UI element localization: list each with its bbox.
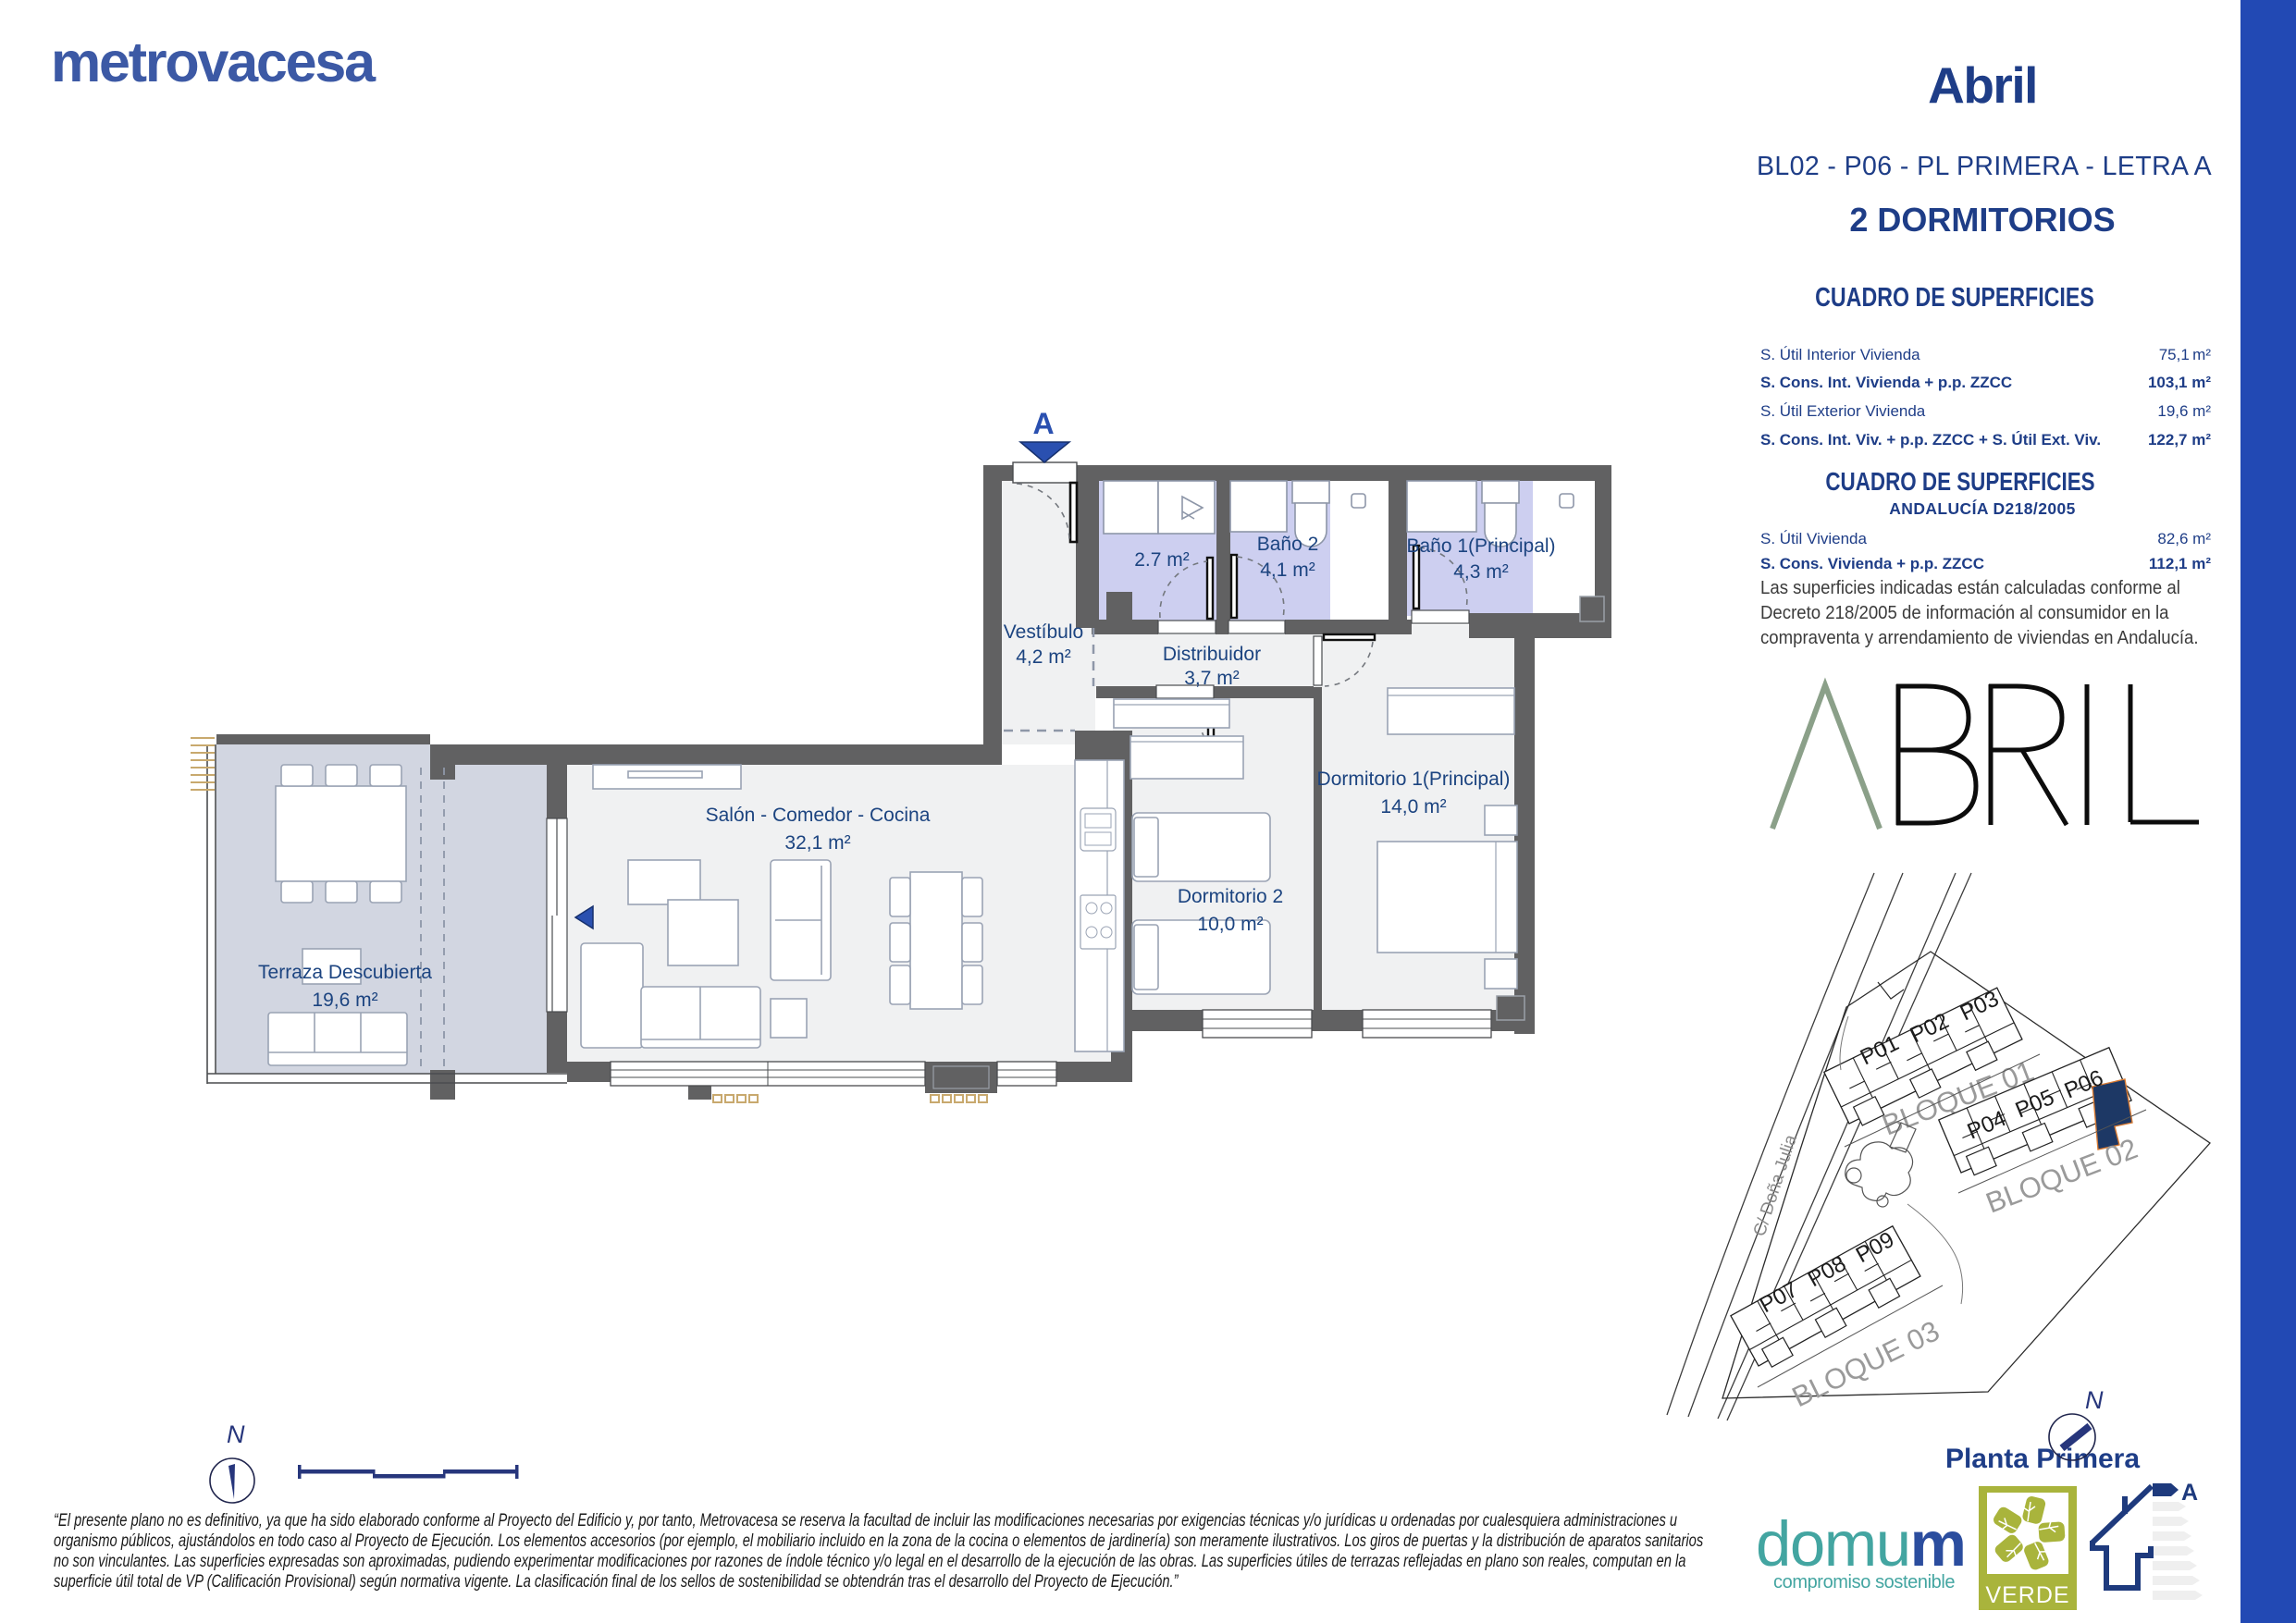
svg-text:10,0 m²: 10,0 m² [1197,914,1263,935]
svg-text:2.7 m²: 2.7 m² [1134,549,1190,571]
svg-text:3,7 m²: 3,7 m² [1184,668,1240,689]
svg-text:Vestíbulo: Vestíbulo [1004,621,1083,643]
svg-text:32,1 m²: 32,1 m² [784,832,850,854]
svg-text:Terraza Descubierta: Terraza Descubierta [258,962,432,983]
svg-text:4,1 m²: 4,1 m² [1260,559,1315,581]
svg-text:Dormitorio 2: Dormitorio 2 [1178,886,1283,907]
svg-text:N: N [227,1420,245,1448]
svg-text:Dormitorio 1(Principal): Dormitorio 1(Principal) [1317,768,1511,790]
svg-text:A: A [1032,407,1054,440]
svg-text:4,3 m²: 4,3 m² [1453,561,1509,583]
svg-text:Baño 2: Baño 2 [1257,534,1319,555]
svg-text:Baño 1(Principal): Baño 1(Principal) [1406,535,1555,557]
svg-text:Distribuidor: Distribuidor [1163,644,1261,665]
svg-text:A: A [2181,1480,2198,1506]
svg-text:VERDE: VERDE [1985,1582,2069,1608]
svg-text:4,2 m²: 4,2 m² [1016,646,1071,668]
svg-text:C/ Doña Julia: C/ Doña Julia [1750,1132,1801,1238]
svg-text:N: N [2085,1386,2104,1414]
svg-text:14,0 m²: 14,0 m² [1380,796,1446,818]
svg-text:19,6 m²: 19,6 m² [312,990,377,1011]
svg-text:Salón - Comedor - Cocina: Salón - Comedor - Cocina [706,805,931,826]
